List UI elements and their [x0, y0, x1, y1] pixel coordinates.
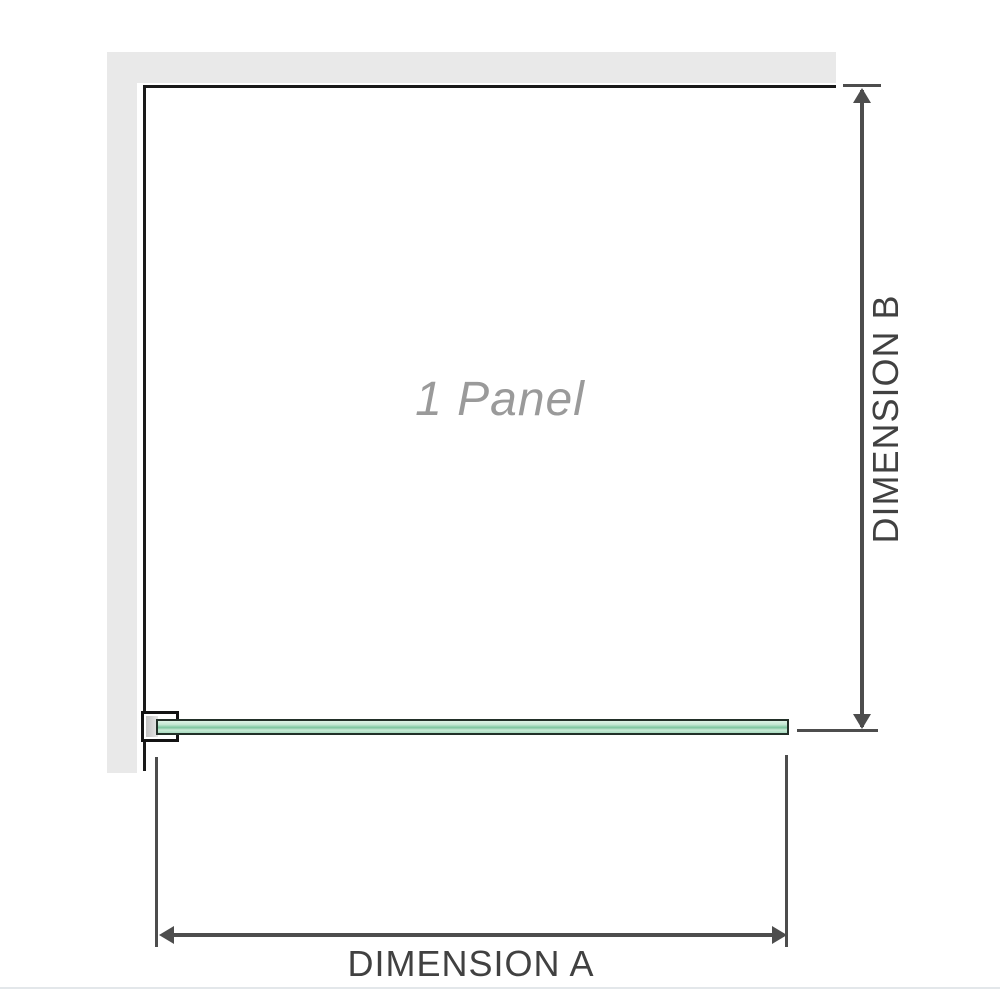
dimension-b-line [860, 90, 864, 727]
dimension-a-line [163, 933, 784, 937]
dimension-b-label: DIMENSION B [866, 269, 906, 569]
arrowhead-right-icon [772, 926, 787, 944]
dimension-diagram: 1 Panel DIMENSION B DIMENSION A [0, 0, 1000, 1000]
dimension-a-label: DIMENSION A [321, 944, 621, 984]
panel-count-label: 1 Panel [350, 370, 650, 430]
dimension-a-extension-right [785, 755, 788, 947]
panel-outline-left [143, 85, 146, 771]
glass-panel [156, 719, 789, 735]
wall-left [107, 52, 137, 773]
dimension-b-tick-bottom [797, 729, 878, 732]
dimension-a-extension-left [155, 757, 158, 947]
page-divider [0, 987, 1000, 989]
dimension-b-tick-top [843, 84, 881, 87]
arrowhead-down-icon [853, 714, 871, 729]
panel-outline-top [143, 85, 836, 88]
arrowhead-left-icon [159, 926, 174, 944]
wall-top [107, 52, 836, 83]
arrowhead-up-icon [853, 88, 871, 103]
